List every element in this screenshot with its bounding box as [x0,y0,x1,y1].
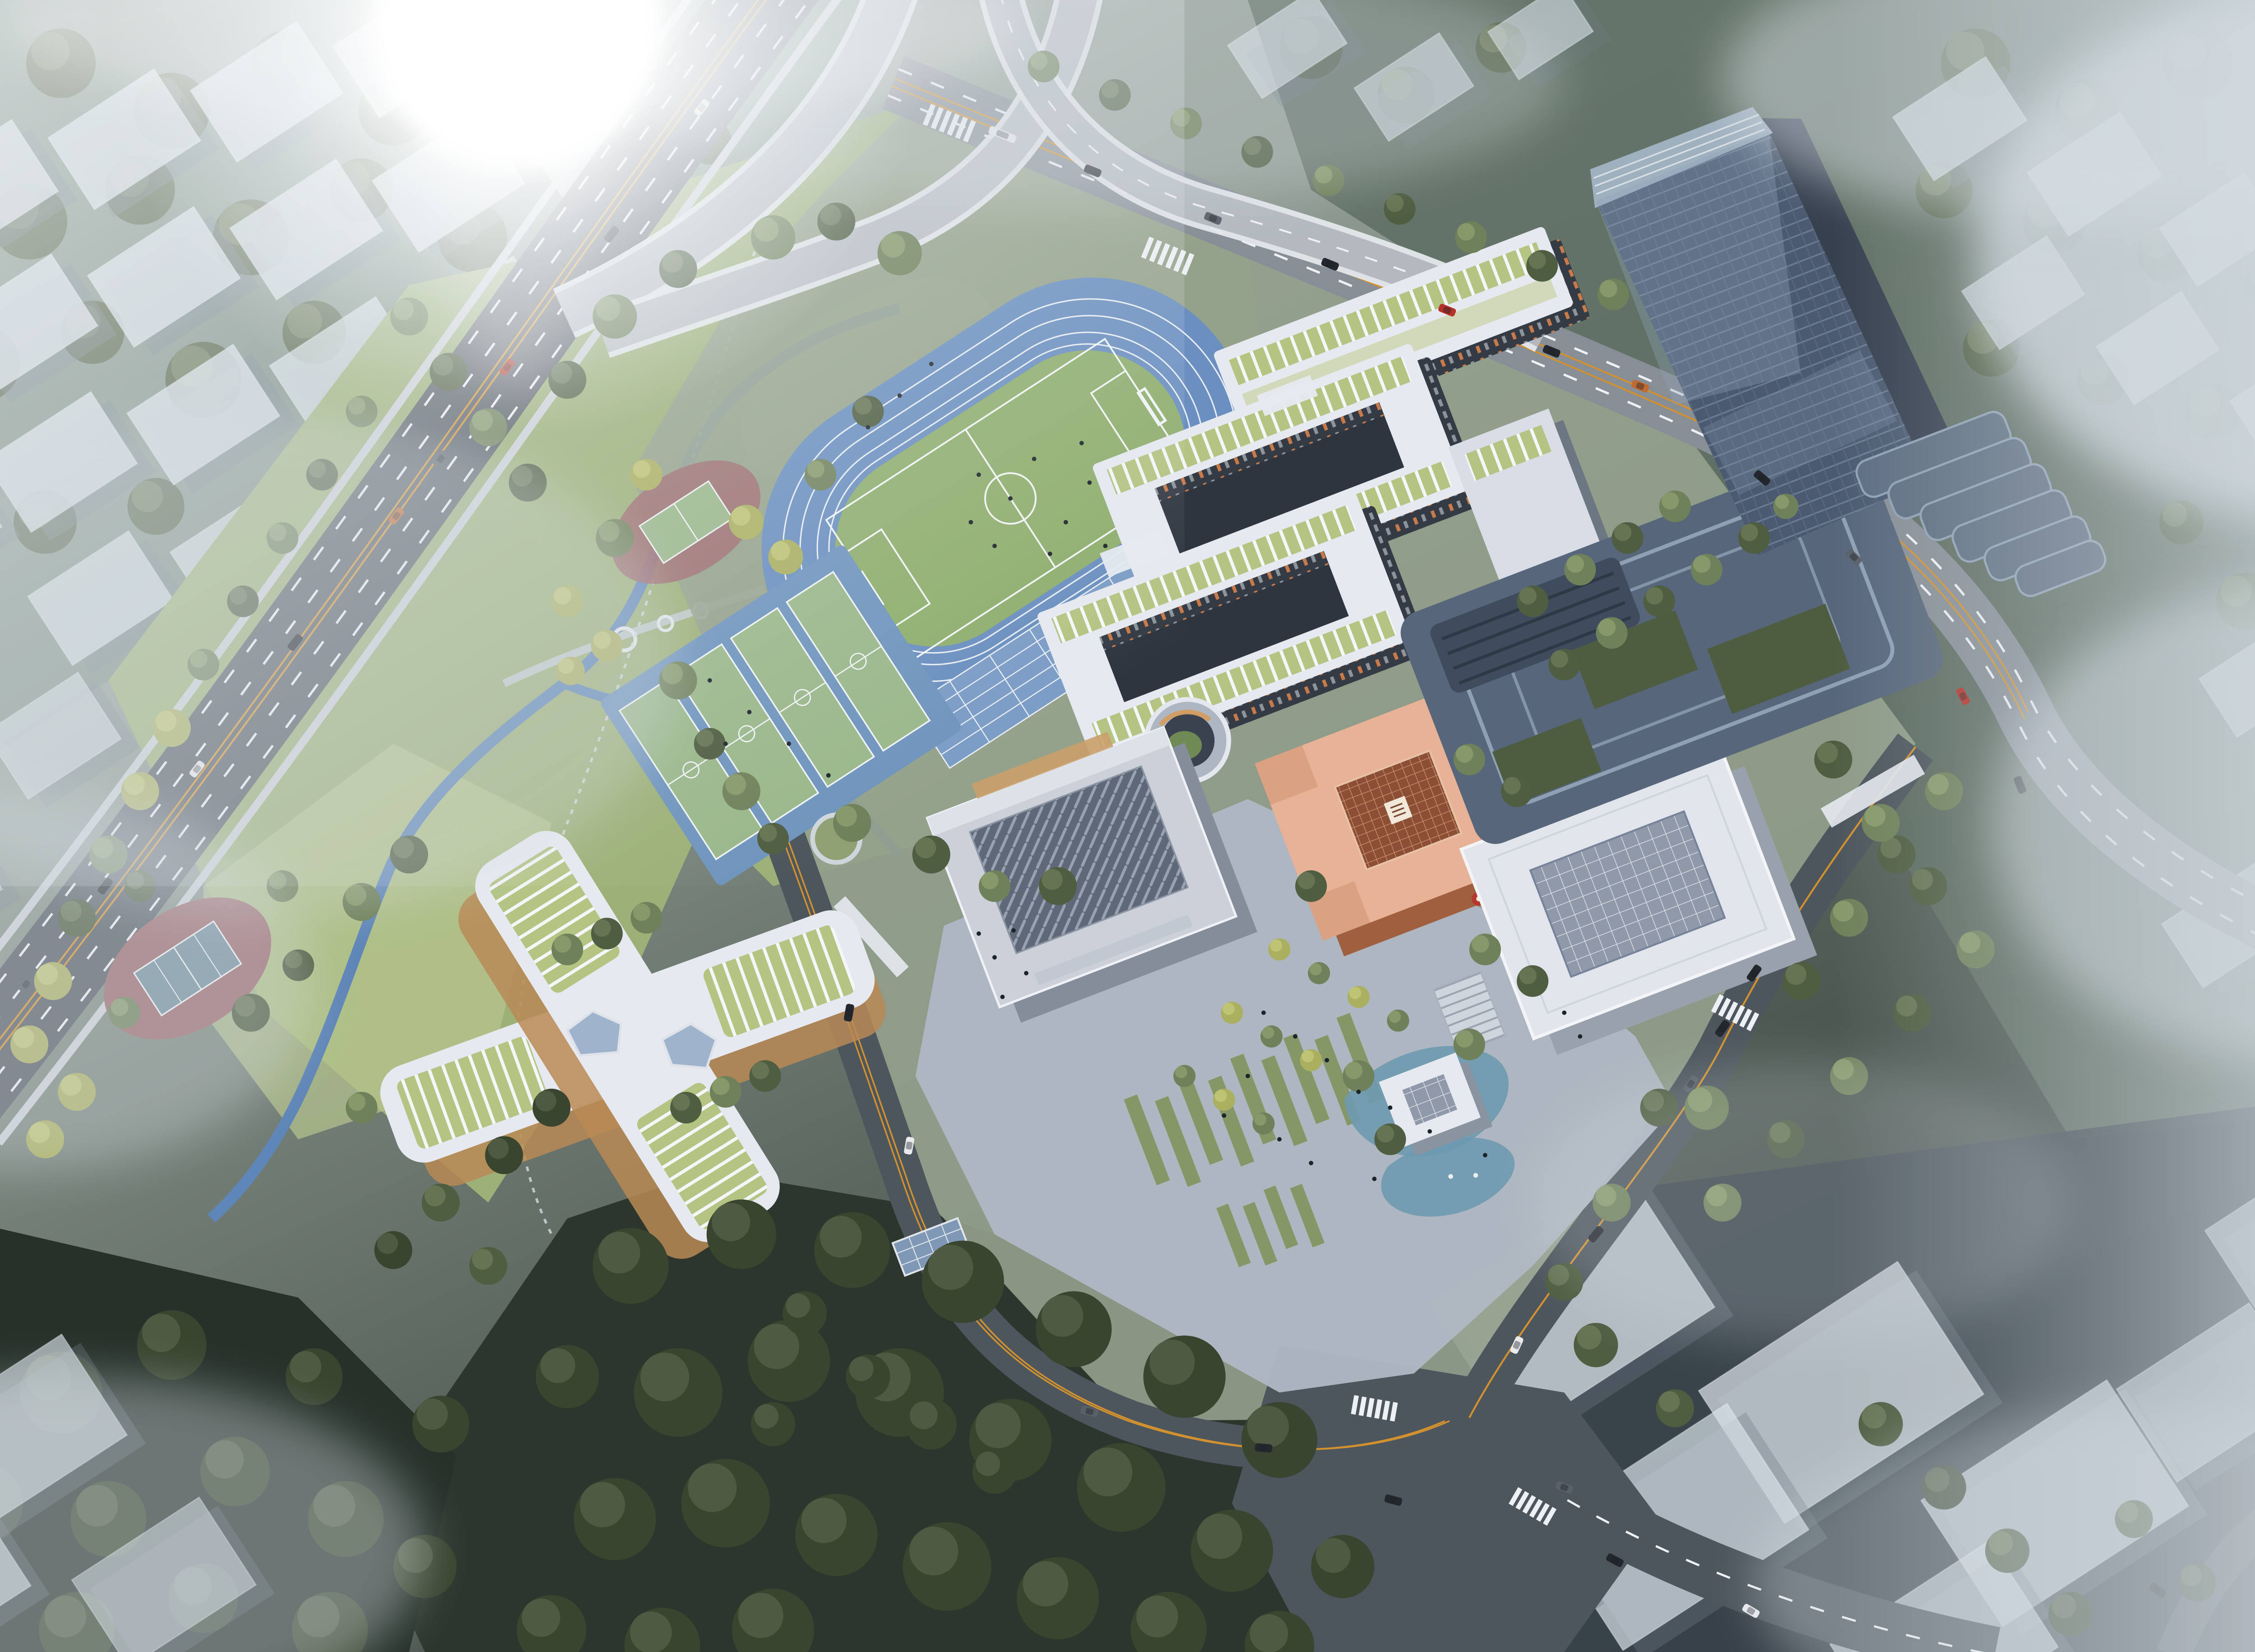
tree-cluster [1261,1026,1283,1048]
tree-highlight [738,1593,783,1638]
tree-highlight [1519,587,1537,605]
tree-highlight [598,1232,640,1274]
tree-highlight [1223,1003,1235,1015]
tree-cluster [1295,870,1327,902]
tree-cluster [681,1459,770,1547]
tree-cluster [670,1092,702,1123]
tree-highlight [712,1203,750,1241]
tree-cluster [972,1450,1017,1494]
person-dot [1325,1058,1329,1063]
tree-cluster [1017,1557,1099,1639]
tree-highlight [1316,1538,1351,1573]
tree-cluster [906,1399,957,1450]
tree-cluster [591,918,623,949]
tree-highlight [910,1527,958,1575]
tree-highlight [290,1351,321,1382]
person-dot [1024,971,1029,976]
aerial-campus-rendering: Dawn aerial rendering of a school campus… [0,0,2255,1652]
tree-highlight [688,1463,736,1512]
tree-cluster [412,1396,469,1453]
tree-highlight [801,1498,847,1543]
tree-cluster [1564,554,1596,585]
tree-cluster [1174,1065,1196,1087]
tree-highlight [820,1216,862,1258]
tree-cluster [374,1231,412,1269]
tree-highlight [1150,1339,1195,1385]
tree-cluster [846,1354,890,1399]
tree-cluster [1526,250,1558,281]
tree-highlight [1598,619,1616,636]
tree-cluster [1454,744,1485,775]
tree-cluster [1036,1291,1112,1367]
tree-highlight [377,1233,398,1254]
tree-cluster [1311,1535,1374,1598]
tree-cluster [533,1089,571,1127]
tree-cluster [630,902,662,934]
tree-highlight [1551,650,1569,668]
tree-highlight [1023,1561,1068,1606]
person-dot [1277,1137,1282,1141]
tree-cluster [922,1241,1004,1323]
tree-highlight [1137,1596,1178,1638]
tree-cluster [1612,522,1643,554]
tree-highlight [712,1077,730,1095]
tree-highlight [1302,1050,1314,1063]
tree-highlight [633,903,651,921]
tree-highlight [554,935,571,953]
tree-highlight [910,1401,938,1429]
tree-highlight [417,1399,448,1430]
tree-highlight [672,1093,690,1111]
person-dot [1578,1034,1583,1039]
tree-cluster [574,1478,656,1560]
tree-highlight [142,1314,180,1352]
tree-highlight [540,1348,575,1383]
tree-cluster [634,1348,722,1436]
tree-highlight [1456,745,1473,763]
tree-highlight [1614,524,1632,541]
tree-cluster [1348,986,1370,1008]
tree-cluster [469,1247,507,1285]
person-dot [1372,1177,1376,1181]
tree-cluster [1643,585,1675,617]
tree-cluster [285,1348,342,1405]
tree-cluster [552,934,583,965]
tree-highlight [849,1357,874,1381]
tree-cluster [593,1228,668,1304]
tree-cluster [1597,279,1629,310]
tree-cluster [1191,1509,1273,1592]
tree-cluster [1143,1335,1225,1417]
tree-cluster [1517,585,1548,617]
person-dot [1261,1011,1266,1015]
tree-cluster [1455,221,1486,253]
tree-highlight [1250,1614,1288,1652]
person-dot [1483,1153,1487,1157]
tree-highlight [1519,967,1537,985]
tree-highlight [1270,939,1282,952]
tree-highlight [1577,1325,1602,1349]
person-dot [1388,1105,1393,1110]
tree-cluster [1343,1060,1374,1092]
tree-highlight [1386,195,1404,212]
tree-cluster [814,1212,890,1288]
person-dot [976,931,981,936]
tree-cluster [1469,934,1501,965]
fog-patch [1532,1060,2071,1345]
tree-highlight [580,1482,625,1527]
tree-cluster [1300,1049,1322,1071]
tree-cluster [1242,1402,1317,1478]
tree-highlight [424,1186,445,1206]
tree-highlight [1254,1114,1266,1126]
tree-highlight [1693,556,1711,573]
tree-cluster [1213,1089,1235,1111]
tree-cluster [795,1494,877,1576]
tree-cluster [1252,1113,1275,1135]
tree-highlight [1377,1125,1394,1143]
tree-cluster [1517,965,1548,997]
tree-cluster [1548,649,1580,681]
tree-cluster [422,1183,460,1221]
tree-cluster [751,1402,795,1446]
tree-highlight [1456,1030,1473,1048]
tree-cluster [707,1200,776,1269]
tree-highlight [1345,1062,1362,1079]
person-dot [1000,995,1005,999]
tree-cluster [1659,491,1691,522]
tree-highlight [1741,524,1758,541]
tree-cluster [1738,522,1770,554]
tree-cluster [1783,962,1821,1000]
tree-highlight [1262,1026,1274,1039]
person-dot [1427,1129,1432,1134]
tree-highlight [1528,252,1546,269]
tree-cluster [1454,1029,1485,1060]
tree-highlight [1175,1066,1187,1078]
tree-highlight [928,1245,973,1290]
person-dot [1356,1090,1361,1094]
person-dot [1011,928,1016,933]
scene-canvas [0,0,2255,1652]
tree-highlight [1389,1011,1401,1023]
tree-highlight [535,1091,556,1111]
tree-cluster [1387,1010,1409,1032]
tree-cluster [749,1060,781,1092]
tree-highlight [1786,964,1806,985]
tree-highlight [1247,1406,1289,1448]
tree-highlight [1349,987,1361,999]
tree-highlight [1041,1295,1083,1337]
tree-cluster [1221,1002,1243,1024]
tree-cluster [1374,1123,1406,1155]
tree-highlight [752,1062,769,1079]
person-dot [1309,1161,1313,1165]
tree-highlight [630,1611,672,1652]
tree-cluster [1656,1390,1694,1427]
tree-highlight [348,1093,366,1111]
person-dot [1293,1034,1298,1039]
person-dot [992,955,997,960]
tree-cluster [1308,962,1330,984]
tree-highlight [1600,280,1617,298]
tree-highlight [472,1249,493,1270]
tree-cluster [1596,617,1628,649]
tree-cluster [137,1310,207,1380]
tree-highlight [976,1452,1000,1476]
tree-highlight [1298,872,1315,889]
tree-cluster [536,1345,599,1408]
tree-cluster [903,1522,991,1611]
tree-highlight [1310,963,1322,976]
car [1255,1443,1273,1453]
tree-highlight [1215,1090,1227,1102]
tree-highlight [1083,1448,1132,1496]
tree-cluster [485,1136,523,1174]
tree-highlight [1567,556,1584,573]
tree-cluster [710,1076,741,1108]
tree-highlight [1458,223,1475,241]
person-dot [1246,1074,1250,1078]
tree-highlight [1775,495,1789,509]
tree-cluster [1077,1443,1165,1532]
person-dot [1562,1011,1566,1015]
tree-highlight [1472,935,1489,953]
tree-cluster [1384,193,1415,225]
tree-highlight [976,1403,1021,1448]
person-dot [1222,1114,1226,1118]
tree-highlight [1659,1391,1680,1412]
tree-highlight [1503,777,1521,795]
tree-cluster [346,1092,377,1123]
tree-cluster [1691,554,1722,585]
tree-highlight [640,1353,689,1401]
tree-highlight [1661,492,1679,510]
tree-highlight [754,1404,778,1429]
tree-cluster [1268,939,1290,961]
tree-highlight [786,1293,810,1318]
tree-cluster [782,1291,827,1335]
tree-highlight [1646,587,1663,605]
tree-cluster [1574,1323,1618,1367]
car-roof [1260,1445,1268,1451]
tree-cluster [748,1320,830,1402]
tree-cluster [1773,494,1799,519]
tree-highlight [522,1598,560,1637]
tree-highlight [594,920,611,937]
tree-cluster [1501,775,1532,807]
tree-highlight [488,1138,509,1159]
tree-highlight [1197,1514,1242,1559]
